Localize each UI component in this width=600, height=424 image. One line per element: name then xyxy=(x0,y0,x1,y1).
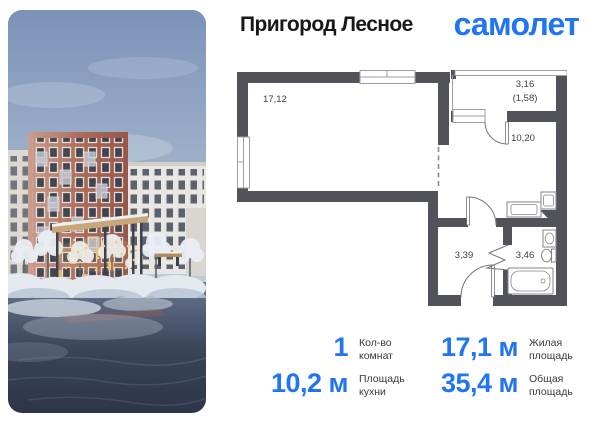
stat-living-area-value: 17,1 м xyxy=(408,334,518,361)
stat-living-area: 17,1 м Жилая площадь xyxy=(408,334,573,362)
living-room-label: 17,12 xyxy=(263,94,287,105)
bathroom-folding-door xyxy=(487,245,508,270)
kitchen-door-leaf xyxy=(467,197,470,225)
stat-total-area-label-line2: площадь xyxy=(529,386,573,399)
fixtures xyxy=(507,192,556,294)
stat-total-area-label: Общая площадь xyxy=(529,373,573,398)
hallway-label: 3,39 xyxy=(455,250,474,261)
project-photo xyxy=(8,10,206,413)
balcony-door-arc xyxy=(485,122,507,144)
stat-kitchen-area-label-line2: кухни xyxy=(359,386,405,399)
room-labels: 17,12 3,16 (1,58) 10,20 3,39 3,46 xyxy=(263,79,537,261)
stat-rooms-value: 1 xyxy=(240,334,348,361)
stat-rooms-label-line1: Кол-во xyxy=(359,337,393,350)
entrance-door-arc xyxy=(461,265,493,297)
samolet-logo: самолет xyxy=(454,6,579,43)
stat-rooms-label: Кол-во комнат xyxy=(359,337,393,362)
floorplan-svg: 17,12 3,16 (1,58) 10,20 3,39 3,46 xyxy=(237,68,567,306)
bathroom-label: 3,46 xyxy=(516,250,535,261)
ground xyxy=(8,297,206,413)
stat-kitchen-area-value: 10,2 м xyxy=(240,370,348,397)
toilet-tank xyxy=(552,249,557,262)
balcony-reduced-label: (1,58) xyxy=(513,93,538,104)
stat-kitchen-area-label-line1: Площадь xyxy=(359,373,405,386)
stat-living-area-label: Жилая площадь xyxy=(529,337,573,362)
stat-rooms-label-line2: комнат xyxy=(359,350,393,363)
stat-rooms: 1 Кол-во комнат xyxy=(240,334,393,362)
stat-total-area-label-line1: Общая xyxy=(529,373,573,386)
project-title: Пригород Лесное xyxy=(240,13,413,37)
balcony-door-leaf xyxy=(506,122,509,144)
stat-total-area-value: 35,4 м xyxy=(408,370,518,397)
stat-total-area: 35,4 м Общая площадь xyxy=(408,370,573,398)
balcony-glazing xyxy=(455,71,567,76)
kitchen-label: 10,20 xyxy=(511,133,535,144)
toilet-bowl xyxy=(542,249,552,261)
stat-kitchen-area: 10,2 м Площадь кухни xyxy=(240,370,405,398)
stat-living-area-label-line1: Жилая xyxy=(529,337,573,350)
balcony-label: 3,16 xyxy=(516,79,535,90)
doors xyxy=(461,122,508,297)
kitchen-door-arc xyxy=(468,197,496,225)
entrance-door-leaf xyxy=(492,265,495,297)
stat-living-area-label-line2: площадь xyxy=(529,350,573,363)
project-photo-illustration xyxy=(8,10,206,413)
stat-kitchen-area-label: Площадь кухни xyxy=(359,373,405,398)
